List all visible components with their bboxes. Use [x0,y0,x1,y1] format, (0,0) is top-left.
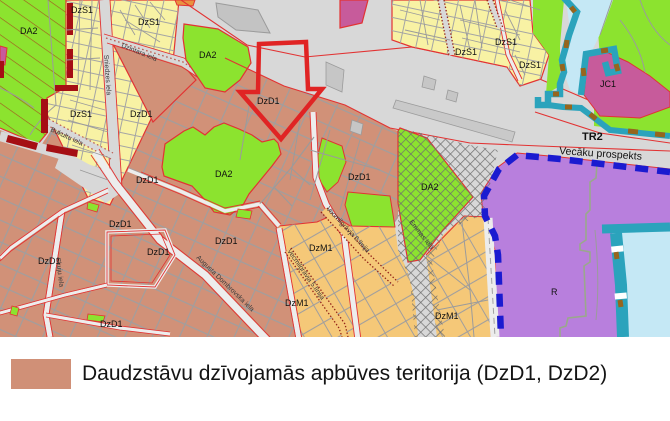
svg-text:DzS1: DzS1 [495,37,517,47]
svg-text:DzS1: DzS1 [71,5,93,15]
svg-text:JC1: JC1 [600,79,616,89]
svg-text:DzD1: DzD1 [348,172,371,182]
svg-text:DzM1: DzM1 [435,311,459,321]
svg-text:DzM1: DzM1 [309,243,333,253]
svg-text:DA2: DA2 [215,169,233,179]
svg-text:DzM1: DzM1 [285,298,309,308]
svg-text:DzS1: DzS1 [519,60,541,70]
svg-text:DzD1: DzD1 [257,96,280,106]
svg-text:DzD1: DzD1 [100,319,123,329]
svg-text:DA2: DA2 [20,26,38,36]
svg-text:DzD1: DzD1 [136,175,159,185]
svg-text:DzS1: DzS1 [138,17,160,27]
svg-text:TR2: TR2 [582,131,603,143]
svg-text:DA2: DA2 [421,182,439,192]
svg-text:DzD1: DzD1 [147,247,170,257]
svg-text:DzD1: DzD1 [215,236,238,246]
svg-text:R: R [551,287,558,297]
svg-text:DzS1: DzS1 [455,47,477,57]
svg-text:DzD1: DzD1 [130,109,153,119]
svg-text:DA2: DA2 [199,50,217,60]
svg-text:DzD1: DzD1 [109,219,132,229]
svg-text:DzS1: DzS1 [70,109,92,119]
